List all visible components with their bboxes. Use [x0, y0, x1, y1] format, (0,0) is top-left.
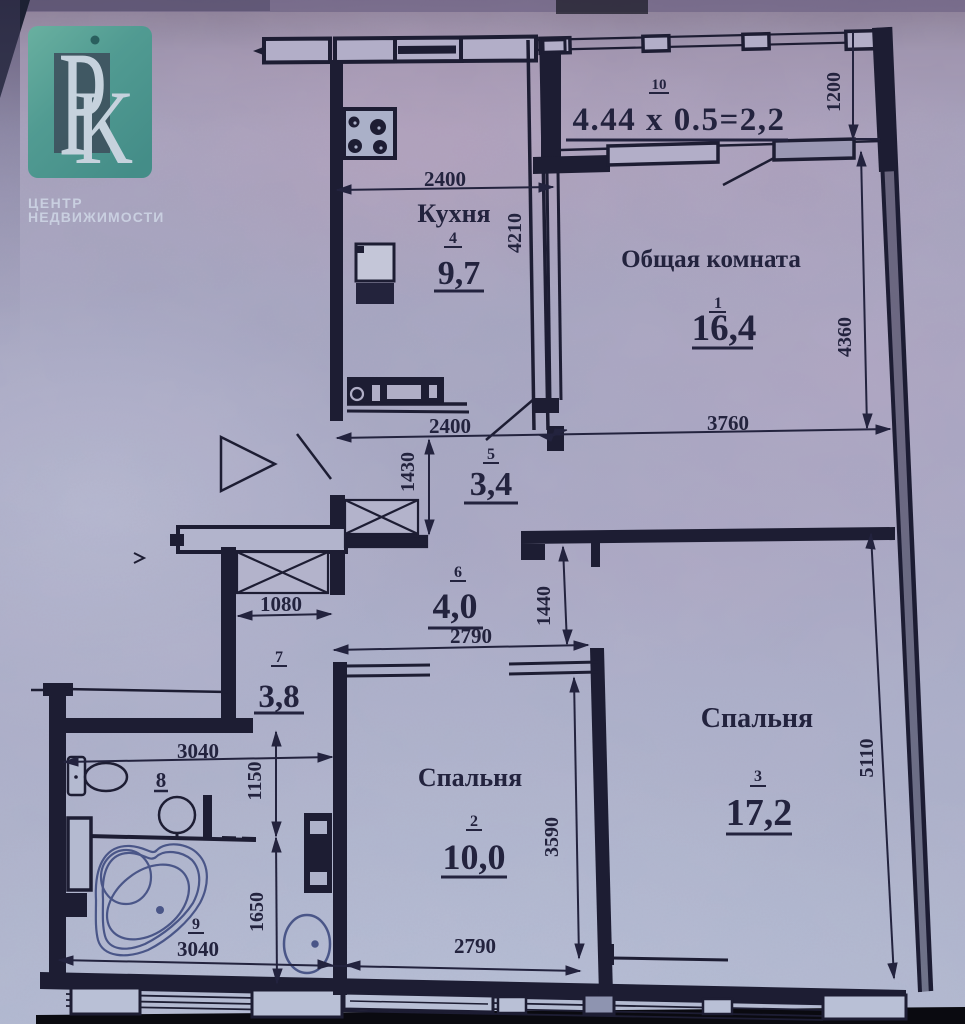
- svg-text:1200: 1200: [823, 72, 845, 112]
- svg-text:2400: 2400: [424, 167, 466, 191]
- svg-text:4,0: 4,0: [433, 586, 478, 626]
- svg-text:Спальня: Спальня: [418, 763, 522, 792]
- svg-text:К: К: [74, 69, 132, 186]
- svg-text:3760: 3760: [707, 411, 749, 435]
- svg-text:3,8: 3,8: [258, 679, 299, 715]
- svg-text:1150: 1150: [244, 762, 266, 801]
- svg-text:1650: 1650: [246, 892, 268, 932]
- svg-text:3040: 3040: [177, 937, 219, 961]
- svg-text:4.44 х 0.5=2,2: 4.44 х 0.5=2,2: [572, 102, 785, 138]
- svg-text:4360: 4360: [834, 317, 856, 357]
- svg-text:4: 4: [449, 230, 457, 247]
- svg-text:2790: 2790: [450, 624, 492, 648]
- svg-text:5110: 5110: [856, 739, 878, 778]
- svg-text:7: 7: [275, 649, 283, 666]
- svg-text:10,0: 10,0: [443, 837, 506, 877]
- svg-text:3,4: 3,4: [470, 466, 513, 503]
- svg-text:1440: 1440: [533, 586, 555, 626]
- svg-text:4210: 4210: [504, 213, 526, 253]
- svg-text:2: 2: [470, 813, 478, 830]
- svg-text:2400: 2400: [429, 414, 471, 438]
- svg-text:9: 9: [192, 916, 200, 933]
- svg-text:10: 10: [652, 77, 667, 93]
- svg-text:8: 8: [156, 768, 167, 792]
- svg-text:5: 5: [487, 446, 495, 463]
- svg-text:3040: 3040: [177, 739, 219, 763]
- svg-text:1080: 1080: [260, 592, 302, 616]
- svg-text:Общая комната: Общая комната: [621, 246, 801, 273]
- svg-text:2790: 2790: [454, 934, 496, 958]
- svg-text:Спальня: Спальня: [701, 703, 813, 734]
- svg-text:16,4: 16,4: [692, 308, 757, 349]
- svg-text:1430: 1430: [397, 452, 419, 492]
- svg-text:3590: 3590: [541, 817, 563, 857]
- svg-text:17,2: 17,2: [726, 792, 793, 834]
- svg-text:9,7: 9,7: [438, 255, 481, 292]
- svg-text:Кухня: Кухня: [417, 199, 490, 228]
- svg-text:3: 3: [754, 768, 762, 785]
- svg-text:НЕДВИЖИМОСТИ: НЕДВИЖИМОСТИ: [28, 209, 164, 225]
- svg-text:6: 6: [454, 564, 462, 581]
